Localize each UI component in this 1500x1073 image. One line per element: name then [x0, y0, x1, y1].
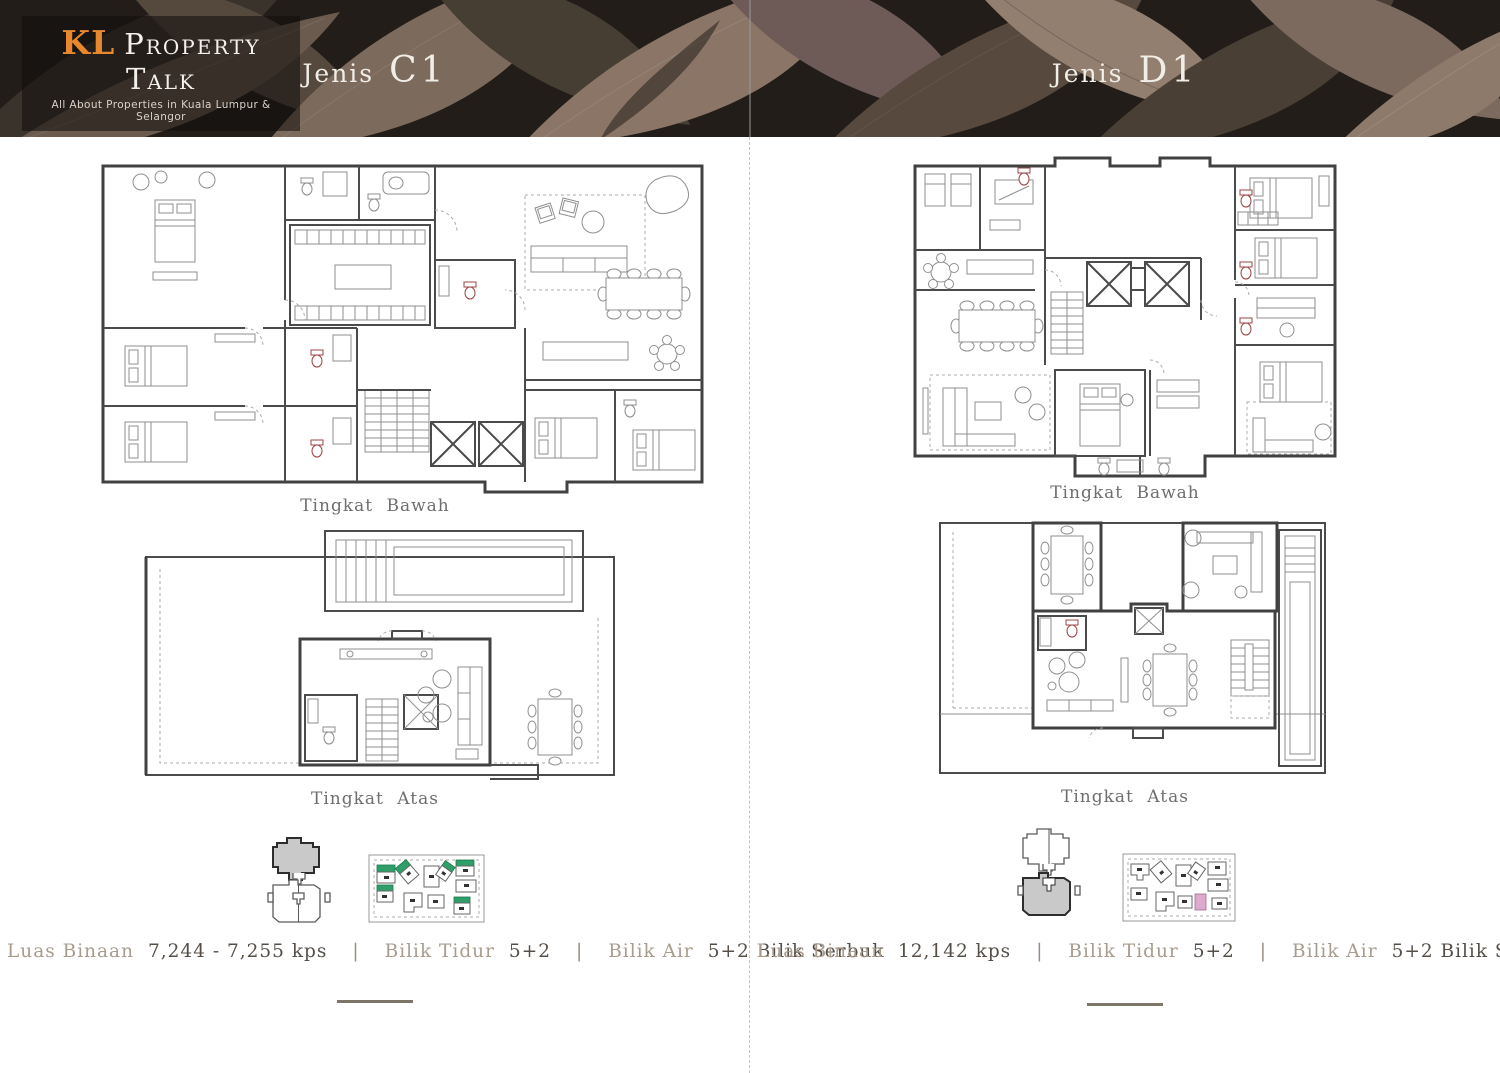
header-banner: KLProperty Talk All About Properties in … [0, 0, 1500, 137]
d1-footer-rule [1087, 1003, 1163, 1006]
title-value: C1 [389, 50, 447, 91]
c1-upper-floor-label: Tingkat Atas [0, 789, 750, 809]
floorplan-c1-upper [140, 527, 620, 790]
separator: | [576, 941, 583, 962]
panel-title-c1: JenisC1 [0, 50, 750, 91]
d1-info-row: Luas Binaan12,142 kps|Bilik Tidur5+2|Bil… [750, 941, 1500, 962]
floorplan-d1-upper [935, 518, 1330, 780]
d1-upper-floor-label: Tingkat Atas [750, 787, 1500, 807]
area-label: Luas Binaan [757, 941, 884, 962]
separator: | [1260, 941, 1267, 962]
keyplan-c1-building [263, 833, 335, 929]
title-value: D1 [1138, 50, 1198, 91]
c1-footer-rule [337, 1000, 413, 1003]
bedrooms-label: Bilik Tidur [385, 941, 495, 962]
floorplan-c1-lower [95, 150, 710, 495]
bedrooms-value: 5+2 [1193, 941, 1235, 962]
d1-lower-floor-label: Tingkat Bawah [750, 483, 1500, 503]
separator: | [1036, 941, 1043, 962]
panel-title-d1: JenisD1 [750, 50, 1500, 91]
title-prefix: Jenis [1052, 59, 1124, 88]
brochure-page: KLProperty Talk All About Properties in … [0, 0, 1500, 1073]
floorplan-d1-lower [905, 150, 1345, 480]
brand-tagline: All About Properties in Kuala Lumpur & S… [28, 99, 294, 123]
c1-info-row: Luas Binaan7,244 - 7,255 kps|Bilik Tidur… [0, 941, 750, 962]
title-prefix: Jenis [302, 59, 374, 88]
keyplan-c1-siteplan [368, 853, 486, 925]
c1-lower-floor-label: Tingkat Bawah [0, 496, 750, 516]
bedrooms-value: 5+2 [509, 941, 551, 962]
keyplan-d1-building [1013, 822, 1085, 922]
bathrooms-value: 5+2 Bilik Serbuk [1392, 941, 1500, 962]
center-divider [749, 137, 750, 1073]
keyplan-d1-siteplan [1122, 852, 1237, 924]
separator: | [352, 941, 359, 962]
bathrooms-label: Bilik Air [1292, 941, 1378, 962]
bedrooms-label: Bilik Tidur [1068, 941, 1178, 962]
bathrooms-label: Bilik Air [608, 941, 694, 962]
area-value: 7,244 - 7,255 kps [148, 941, 327, 962]
area-label: Luas Binaan [7, 941, 134, 962]
area-value: 12,142 kps [898, 941, 1011, 962]
